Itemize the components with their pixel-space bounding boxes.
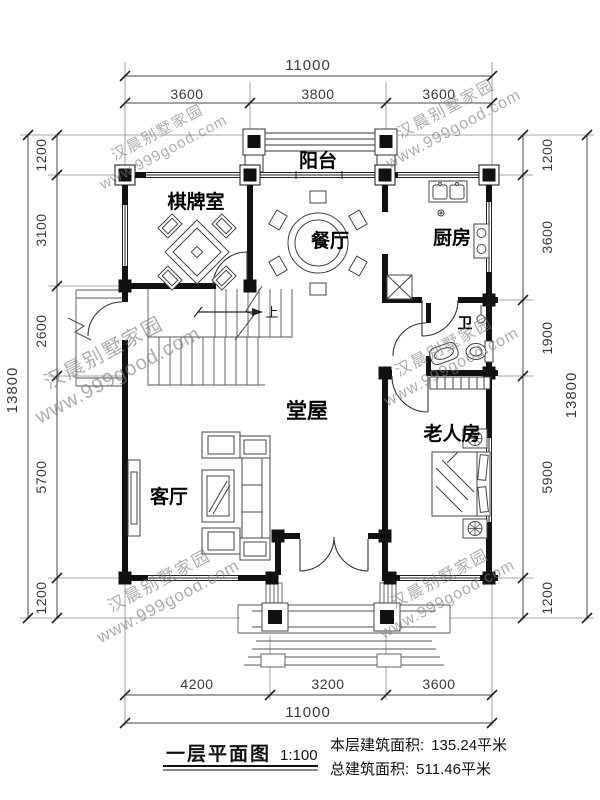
dim-left-total: 13800 xyxy=(4,367,21,414)
dim-right-seg2: 3600 xyxy=(539,220,555,253)
dim-right-seg3: 1900 xyxy=(539,321,555,354)
dim-right-seg5: 1200 xyxy=(539,581,555,614)
stair-up-arrow xyxy=(194,307,252,317)
elder-room-furniture xyxy=(432,429,490,538)
entry-porch xyxy=(238,583,450,667)
bath-label: 卫 xyxy=(457,315,472,332)
dim-bottom-seg1: 4200 xyxy=(180,676,213,692)
bath-door xyxy=(393,323,426,356)
drawing-title: 一层平面图 xyxy=(166,743,271,765)
main-entry-double-door xyxy=(300,537,368,571)
side-entry-door xyxy=(88,302,122,336)
dim-left-seg4: 5700 xyxy=(33,460,49,493)
dim-left-seg5: 1200 xyxy=(33,581,49,614)
wardrobe-counter xyxy=(430,377,490,389)
dim-left-seg2: 3100 xyxy=(33,213,49,246)
floor-plan-drawing: 棋牌室 阳台 餐厅 厨房 卫 堂屋 客厅 老人房 上 11000 3600 38… xyxy=(0,0,600,800)
floor-plan-sheet: 棋牌室 阳台 餐厅 厨房 卫 堂屋 客厅 老人房 上 11000 3600 38… xyxy=(0,0,600,800)
hall-label: 堂屋 xyxy=(286,399,328,423)
dim-top-seg1: 3600 xyxy=(170,86,203,102)
dim-right-seg4: 5900 xyxy=(539,460,555,493)
dim-top-total: 11000 xyxy=(285,57,331,74)
elder-room-door xyxy=(392,376,428,412)
chess-room-furniture xyxy=(158,214,236,290)
dim-top-seg2: 3800 xyxy=(301,86,334,102)
balcony-label: 阳台 xyxy=(299,149,337,172)
dim-bottom-seg3: 3600 xyxy=(422,676,455,692)
wash-basin xyxy=(428,341,460,367)
dim-right-total: 13800 xyxy=(563,372,580,419)
staircase xyxy=(148,286,292,385)
dim-bottom-total: 11000 xyxy=(285,704,331,721)
dim-bottom-seg2: 3200 xyxy=(311,676,344,692)
total-area-line: 总建筑面积:511.46平米 xyxy=(330,761,491,778)
side-entry-steps xyxy=(68,290,122,386)
living-label: 客厅 xyxy=(150,485,188,508)
sofa xyxy=(242,458,270,538)
dim-right-seg1: 1200 xyxy=(539,138,555,171)
dim-top-seg3: 3600 xyxy=(422,86,455,102)
drawing-scale: 1:100 xyxy=(280,747,318,764)
floor-area-line: 本层建筑面积:135.24平米 xyxy=(330,737,507,754)
stairs-up-label: 上 xyxy=(265,305,278,320)
elder-room-label: 老人房 xyxy=(423,422,480,445)
kitchen-label: 厨房 xyxy=(433,226,471,249)
dining-label: 餐厅 xyxy=(311,229,349,252)
dim-left-seg1: 1200 xyxy=(33,138,49,171)
dim-left-seg3: 2600 xyxy=(33,314,49,347)
chess-room-label: 棋牌室 xyxy=(167,190,224,213)
footer: 一层平面图 1:100 本层建筑面积:135.24平米 总建筑面积:511.46… xyxy=(163,737,507,778)
